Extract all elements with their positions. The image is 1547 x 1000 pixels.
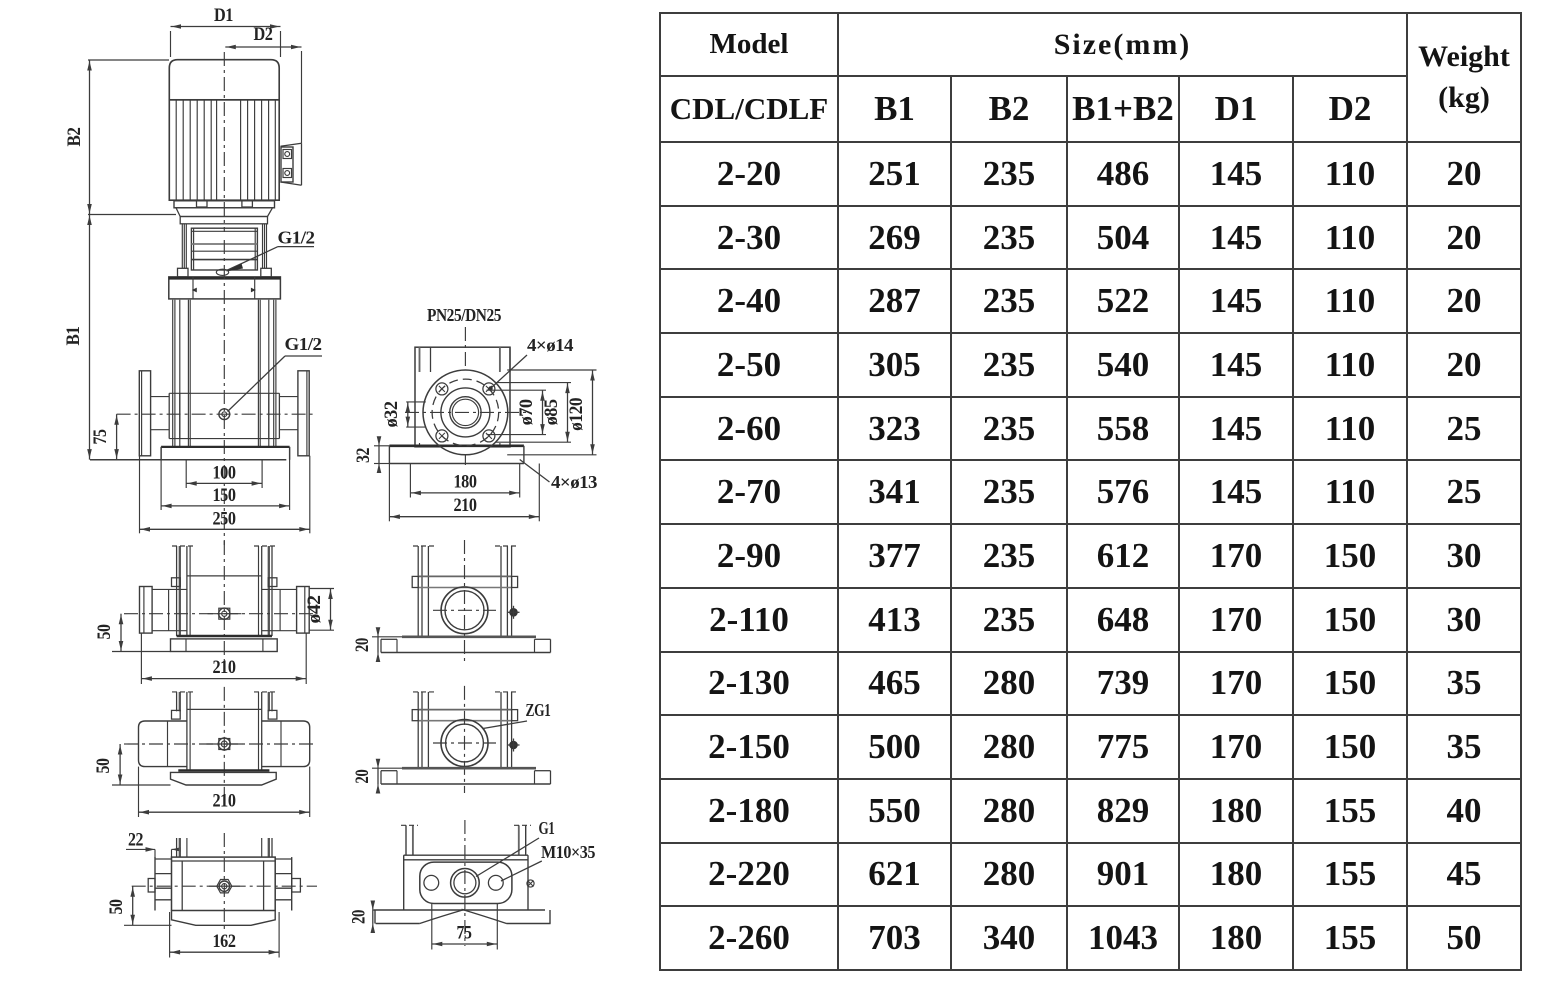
svg-text:22: 22: [128, 830, 143, 851]
svg-text:250: 250: [213, 508, 236, 529]
svg-text:210: 210: [454, 495, 477, 516]
svg-text:162: 162: [213, 931, 236, 952]
svg-text:75: 75: [457, 923, 472, 944]
svg-text:180: 180: [454, 472, 477, 493]
svg-text:75: 75: [90, 430, 111, 445]
svg-text:20: 20: [352, 638, 373, 652]
svg-text:G1/2: G1/2: [285, 334, 323, 354]
svg-text:ø120: ø120: [566, 398, 587, 431]
svg-text:ø42: ø42: [304, 596, 325, 624]
svg-text:210: 210: [213, 657, 236, 678]
svg-text:ø85: ø85: [541, 399, 562, 425]
svg-text:32: 32: [353, 448, 374, 463]
svg-text:D1: D1: [214, 5, 233, 26]
svg-text:M10×35: M10×35: [541, 842, 595, 862]
svg-text:B2: B2: [64, 128, 85, 147]
svg-text:G1/2: G1/2: [278, 228, 316, 248]
svg-text:G1: G1: [539, 818, 555, 838]
svg-text:ø70: ø70: [516, 399, 537, 425]
svg-text:ZG1: ZG1: [526, 700, 551, 720]
svg-text:210: 210: [213, 791, 236, 812]
svg-text:20: 20: [352, 770, 373, 784]
svg-text:150: 150: [213, 485, 236, 506]
svg-text:4×ø13: 4×ø13: [551, 472, 598, 492]
svg-text:B1: B1: [63, 327, 84, 346]
svg-text:4×ø14: 4×ø14: [527, 335, 574, 355]
svg-text:20: 20: [349, 910, 370, 924]
svg-text:PN25/DN25: PN25/DN25: [427, 305, 501, 325]
svg-text:50: 50: [106, 900, 127, 915]
svg-text:ø32: ø32: [381, 402, 402, 428]
svg-text:100: 100: [213, 463, 236, 484]
svg-text:50: 50: [93, 759, 114, 774]
svg-text:50: 50: [94, 625, 115, 640]
svg-text:D2: D2: [254, 24, 273, 45]
